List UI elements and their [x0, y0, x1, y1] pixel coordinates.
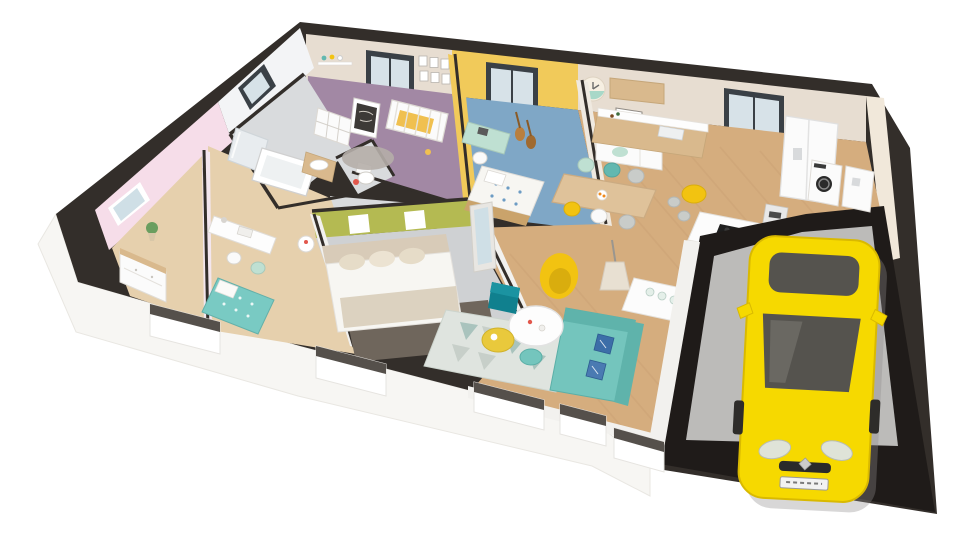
- desk-lamp-icon: [221, 217, 227, 223]
- sideboard-decal: [612, 147, 628, 157]
- vase-icon: [539, 325, 545, 331]
- car: [727, 234, 891, 513]
- fruit-bowl-icon: [597, 190, 607, 200]
- jar-icon: [646, 288, 654, 296]
- chair-grey: [619, 215, 635, 229]
- floorplan-3d-render: [0, 0, 960, 546]
- standing-mirror: [470, 202, 496, 272]
- toy: [425, 149, 431, 155]
- car-wheel: [733, 400, 745, 434]
- desk-chair-white: [227, 252, 241, 264]
- chair-white: [591, 209, 607, 223]
- toy: [353, 179, 359, 185]
- chair-teal: [604, 163, 620, 177]
- bistro-chair: [678, 211, 690, 221]
- coffee-table-white: [509, 306, 563, 346]
- floorplan-canvas: [0, 0, 960, 546]
- master-bed: [322, 234, 462, 332]
- car-rear-window: [768, 252, 860, 297]
- chair-yellow: [564, 202, 580, 216]
- dryer-icon: [842, 166, 874, 212]
- washing-machine-icon: [808, 160, 842, 206]
- sofa: [550, 308, 644, 406]
- master-door-1: [348, 214, 370, 234]
- bottle: [610, 114, 614, 118]
- jar-icon: [658, 292, 666, 300]
- plate: [491, 334, 498, 341]
- side-table-yellow: [482, 328, 514, 352]
- master-door-2: [404, 210, 426, 230]
- chair-grey: [628, 169, 644, 183]
- bottle: [616, 112, 620, 116]
- vase-flowers-icon: [528, 320, 532, 324]
- side-table-teal: [520, 349, 542, 365]
- car-wheel: [869, 399, 881, 433]
- chalkboard-easel: [350, 98, 380, 138]
- teen-chair: [473, 152, 487, 164]
- bistro-chair: [668, 197, 680, 207]
- fridge-dispenser: [793, 148, 802, 160]
- desk-chair-mint: [251, 262, 265, 274]
- flowers-icon: [304, 240, 308, 244]
- bistro-table-yellow: [682, 185, 706, 203]
- nursery-rug: [342, 146, 394, 170]
- chair-mint: [578, 158, 594, 172]
